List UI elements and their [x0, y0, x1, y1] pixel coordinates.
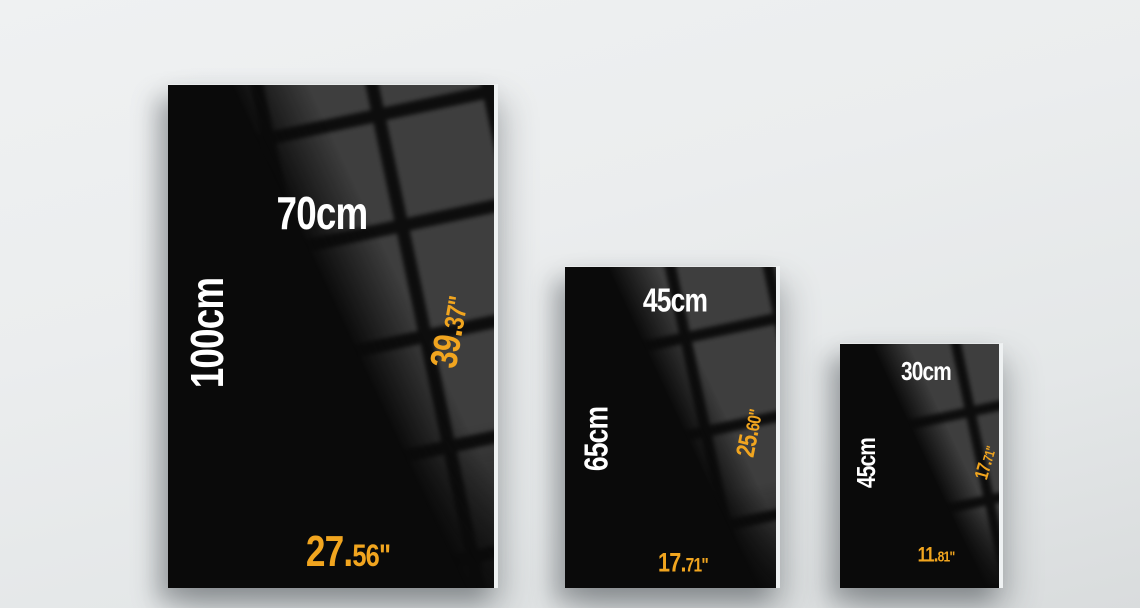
width-cm-label: 30cm [901, 358, 951, 384]
width-cm-label: 70cm [277, 190, 368, 236]
width-inch-label: 11.81" [918, 545, 955, 566]
height-cm-label: 65cm [580, 407, 613, 471]
inch-dec: 60" [742, 408, 767, 433]
inch-dec: 37" [438, 294, 474, 331]
width-cm-label: 45cm [643, 284, 707, 317]
inch-int: 27. [306, 527, 353, 576]
inch-int: 11. [918, 544, 938, 567]
height-cm-label: 45cm [853, 438, 879, 488]
poster-100x70cm: 70cm 100cm 39.37" 27.56" [168, 84, 498, 588]
inch-int: 17. [658, 548, 686, 578]
inch-dec: 71" [980, 445, 999, 464]
poster-65x45cm: 45cm 65cm 25.60" 17.71" [565, 266, 780, 588]
inch-int: 39. [423, 325, 471, 372]
inch-dec: 81" [938, 549, 955, 566]
width-inch-label: 27.56" [306, 530, 390, 574]
wall-scene: 70cm 100cm 39.37" 27.56" 45cm 65cm 25.60… [0, 0, 1140, 608]
poster-45x30cm: 30cm 45cm 17.71" 11.81" [840, 343, 1003, 588]
inch-dec: 71" [686, 555, 708, 577]
width-inch-label: 17.71" [658, 550, 708, 577]
height-cm-label: 100cm [184, 278, 230, 389]
inch-dec: 56" [352, 537, 390, 573]
